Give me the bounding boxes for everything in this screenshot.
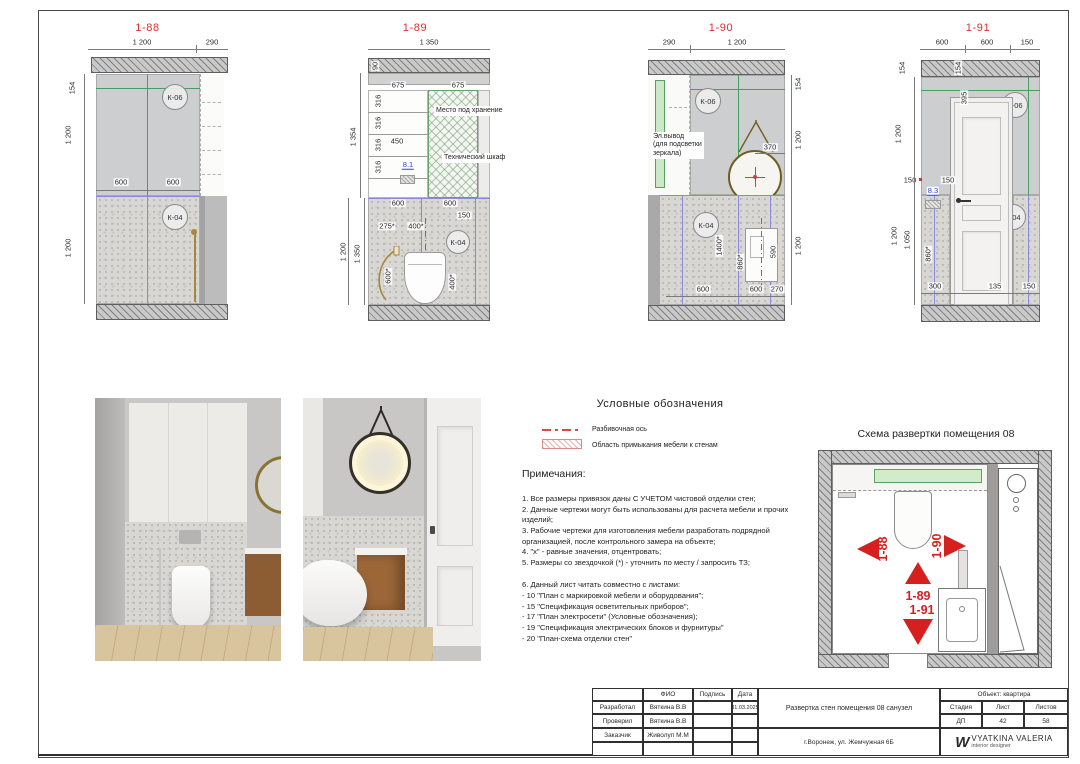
cabinet-shelf-line <box>202 126 221 127</box>
dim-label: 1 200 <box>64 125 72 146</box>
plan-niche-divider <box>988 464 998 654</box>
label-line: (для подсветки <box>653 141 702 149</box>
elevation-1-90: 1-90 290 1 200 К-06 370 Эл.вывод (для по… <box>635 22 807 327</box>
door-panel-render <box>437 566 473 626</box>
dim-label: 90 <box>371 61 379 71</box>
tb-header-fio: ФИО <box>643 688 693 701</box>
cabinet-shelf-line <box>202 150 221 151</box>
mirror-edge-render <box>255 456 281 514</box>
tb-role-checked: Проверил <box>592 714 643 728</box>
dim-label: 600* <box>384 267 392 284</box>
dim-line <box>666 296 785 297</box>
render-toilet-view <box>95 398 281 661</box>
view-label-1-91: 1-91 <box>909 603 934 617</box>
tb-sheets-value: 58 <box>1024 714 1068 728</box>
dim-label: 1 050 <box>903 230 911 251</box>
side-wall-edge <box>648 195 659 305</box>
dim-label: 600 <box>114 178 129 186</box>
green-joint-line <box>921 90 1040 91</box>
dim-label: 600 <box>166 178 181 186</box>
dim-line <box>360 73 361 198</box>
dim-label: 316 <box>374 116 382 131</box>
dim-tick <box>690 45 691 53</box>
tb-empty <box>592 688 643 701</box>
tb-header-sheets: Листов <box>1024 701 1068 714</box>
schema: Схема развертки помещения 08 1-88 1-90 1… <box>810 428 1062 670</box>
legend-title: Условные обозначения <box>520 398 800 410</box>
dim-line <box>88 49 228 50</box>
tb-header-stage: Стадия <box>940 701 982 714</box>
tile-grid-line <box>147 196 148 304</box>
brand-name: VYATKINA VALERIA <box>971 735 1052 744</box>
floor-beam <box>921 305 1040 322</box>
toilet-render <box>172 566 210 628</box>
mirror-center-dot <box>753 175 757 179</box>
tb-name: Вяткина В.В <box>643 701 693 714</box>
cabinet-seam <box>207 403 208 522</box>
vent-grille <box>400 175 415 184</box>
plan-wall-top <box>818 450 1052 464</box>
note-item: - 20 "План-схема отделки стен" <box>522 634 798 645</box>
plan-toilet <box>894 491 932 549</box>
tile-grid-line <box>475 198 476 305</box>
red-tick <box>919 178 922 181</box>
dim-label: 150 <box>457 211 472 219</box>
cabinet-dashed-line <box>669 107 687 108</box>
tb-header-sheet: Лист <box>982 701 1024 714</box>
cabinet-shelf-line <box>368 134 428 135</box>
tb-signature <box>693 728 732 742</box>
finish-tag-k04: К-04 <box>162 204 188 230</box>
electrical-output-label: Эл.вывод (для подсветки зеркала) <box>651 132 704 159</box>
dim-label: 400* <box>407 222 424 230</box>
door-panel-top <box>962 117 1001 195</box>
dim-line <box>348 198 349 305</box>
dim-label: 150 <box>941 176 956 184</box>
tb-empty <box>592 742 643 756</box>
view-label-1-90: 1-90 <box>930 533 944 558</box>
view-label-1-89: 1-89 <box>905 589 930 603</box>
plan-valve <box>1013 506 1019 512</box>
dim-label: 1 200 <box>339 242 347 263</box>
tb-role-client: Заказчик <box>592 728 643 742</box>
tb-stage-value: ДП <box>940 714 982 728</box>
cabinet-shelf-line <box>368 112 428 113</box>
floor-beam <box>96 304 228 320</box>
tb-object: Объект: квартира <box>940 688 1068 701</box>
cabinet-shelf-line <box>368 156 428 157</box>
plan-faucet <box>838 492 856 498</box>
dim-tick <box>965 45 966 53</box>
tb-signature <box>693 714 732 728</box>
sheet-ref-8-1: 8.1 <box>402 161 414 170</box>
dim-label: 300 <box>928 282 943 290</box>
plan-wall-left <box>818 450 832 668</box>
note-item: - 15 "Спецификация осветительных приборо… <box>522 602 798 613</box>
vanity-top-render <box>355 548 407 555</box>
floor-render <box>95 625 281 661</box>
view-label-1-88: 1-88 <box>876 536 890 561</box>
elevation-title: 1-91 <box>888 22 1068 34</box>
plan-wall-right <box>1038 450 1052 668</box>
door-panel-render <box>437 426 473 546</box>
dim-label: 395 <box>960 91 968 106</box>
dim-label: 600 <box>391 199 406 207</box>
green-joint-line <box>147 74 148 196</box>
dim-label: 600 <box>935 38 950 46</box>
dim-tick <box>196 45 197 53</box>
tb-name: Живолуп М.М <box>643 728 693 742</box>
dim-label: 275* <box>378 222 395 230</box>
dim-label: 150 <box>1020 38 1035 46</box>
dim-label: 1 200 <box>794 236 802 257</box>
sheet-ref-8-3: 8.3 <box>927 187 939 196</box>
socket-block <box>925 200 941 209</box>
dim-label: 590 <box>769 245 777 260</box>
dim-label: 370 <box>763 143 778 151</box>
furniture-hatch-label: Область примыкания мебели к стенам <box>592 441 718 451</box>
tile-grid-line <box>368 198 490 199</box>
elevation-1-89: 1-89 1 350 90 675 675 316 316 316 316 45… <box>340 22 515 327</box>
note-item: 4. "х" - равные значения, отцентровать; <box>522 547 798 558</box>
dim-label: 150 <box>1022 282 1037 290</box>
tb-empty <box>643 742 693 756</box>
legend: Условные обозначения Разбивочная ось Обл… <box>520 398 800 462</box>
floor-render <box>303 627 433 661</box>
dim-line <box>364 198 365 305</box>
note-item: 2. Данные чертежи могут быть использован… <box>522 505 798 526</box>
ceiling-band <box>368 73 490 85</box>
finish-tag-k04: К-04 <box>693 212 719 238</box>
dim-label: 290 <box>205 38 220 46</box>
dim-label: 860* <box>736 253 744 270</box>
tb-role-developed: Разработал <box>592 701 643 714</box>
view-arrow-right <box>944 535 966 557</box>
dim-label: 675 <box>451 81 466 89</box>
dim-label: 154 <box>954 61 962 76</box>
toilet-seat-line <box>408 264 442 265</box>
axis-line-label: Разбивочная ось <box>592 425 647 435</box>
dim-label: 600 <box>980 38 995 46</box>
schema-title: Схема развертки помещения 08 <box>810 428 1062 440</box>
label-line: Эл.вывод <box>653 133 702 141</box>
dim-line <box>755 153 785 154</box>
finish-tag-k04: К-04 <box>446 230 470 254</box>
note-item: 5. Размеры со звездочкой (*) - уточнить … <box>522 558 798 569</box>
note-item: - 17 "План электросети" (Условные обозна… <box>522 612 798 623</box>
notes: Примечания: 1. Все размеры привязок даны… <box>522 468 798 644</box>
dim-label: 1 354 <box>349 127 357 148</box>
cabinet-front <box>200 74 224 196</box>
tile-grid-line <box>738 195 739 305</box>
green-joint-line <box>1028 77 1029 195</box>
render-mirror-view <box>303 398 481 661</box>
dim-label: 860* <box>924 245 932 262</box>
elevation-title: 1-90 <box>635 22 807 34</box>
tb-empty <box>693 742 732 756</box>
dim-label: 1400* <box>715 235 723 257</box>
dim-label: 1 200 <box>64 238 72 259</box>
brand-logo: W <box>955 734 967 751</box>
dim-label: 450 <box>390 137 405 145</box>
dim-label: 316 <box>374 94 382 109</box>
note-item: - 10 "План с маркировкой мебели и оборуд… <box>522 591 798 602</box>
elevation-1-88: 1-88 1 200 290 К-06 600 600 К-04 154 1 2… <box>55 22 240 327</box>
tb-sheet-value: 42 <box>982 714 1024 728</box>
dim-label: 316 <box>374 160 382 175</box>
tile-grid-line <box>659 195 785 196</box>
dim-line <box>914 77 915 305</box>
tb-address: г.Воронеж, ул. Жемчужная 6Б <box>758 728 940 756</box>
dim-line <box>648 49 785 50</box>
tb-empty <box>732 742 758 756</box>
round-mirror-render <box>349 432 411 494</box>
dim-label: 675 <box>391 81 406 89</box>
notes-title: Примечания: <box>522 468 798 480</box>
storage-label: Место под хранение <box>434 106 505 116</box>
dim-label: 135 <box>988 282 1003 290</box>
dim-label: 154 <box>898 61 906 76</box>
finish-tag-k06: К-06 <box>162 84 188 110</box>
ceiling-beam <box>368 58 490 73</box>
axis-line-sample <box>542 429 582 431</box>
title-block: ФИО Подпись Дата Развертка стен помещени… <box>592 688 1068 756</box>
plan-wall-bottom <box>818 654 1052 668</box>
dim-label: 1 200 <box>890 226 898 247</box>
note-item: 1. Все размеры привязок даны С УЧЕТОМ чи… <box>522 494 798 505</box>
tb-header-sign: Подпись <box>693 688 732 701</box>
tb-date: 31.03.2025 <box>732 701 758 714</box>
finish-tag-k06: К-06 <box>695 88 721 114</box>
floor-beam <box>648 305 785 321</box>
door-panel-middle <box>962 205 1001 221</box>
dim-label: 600 <box>696 285 711 293</box>
tb-date <box>732 728 758 742</box>
render-left-wall <box>95 398 125 661</box>
plan-led-strip <box>874 469 982 483</box>
dim-line <box>84 74 85 304</box>
dim-line <box>791 75 792 305</box>
tb-doc-title: Развертка стен помещения 08 санузел <box>758 688 940 728</box>
plan-sink-faucet <box>959 606 965 612</box>
door-handle-render <box>430 526 435 534</box>
note-item: - 19 "Спецификация электрических блоков … <box>522 623 798 634</box>
dim-tick <box>1010 45 1011 53</box>
plan-sink-basin <box>946 598 978 642</box>
render-wall-cabinet <box>129 403 247 524</box>
ceiling-beam <box>91 57 228 73</box>
dim-line <box>96 190 200 191</box>
elevation-title: 1-88 <box>55 22 240 34</box>
note-item: 3. Рабочие чертежи для изготовления мебе… <box>522 526 798 547</box>
tb-header-date: Дата <box>732 688 758 701</box>
tb-date <box>732 714 758 728</box>
plan-door-opening <box>888 654 928 668</box>
cabinet-shelf-line <box>368 178 428 179</box>
flush-plate <box>179 530 201 544</box>
hygienic-shower-head <box>191 229 197 235</box>
floor-beam <box>368 305 490 321</box>
cabinet-shelf-line <box>202 174 221 175</box>
dim-label: 1 200 <box>794 130 802 151</box>
dim-label: 316 <box>374 138 382 153</box>
elevation-title: 1-89 <box>340 22 490 34</box>
hygienic-shower-render <box>159 548 161 626</box>
dim-label: 1 200 <box>894 124 902 145</box>
dim-label: 600 <box>443 199 458 207</box>
plan-niche-diagonal <box>998 558 1038 654</box>
ceiling-beam <box>648 60 785 75</box>
tech-closet-label: Технический шкаф <box>442 153 507 163</box>
dim-line <box>368 49 490 50</box>
side-wall-edge <box>200 196 205 304</box>
tb-signature <box>693 701 732 714</box>
dim-label: 1 200 <box>132 38 153 46</box>
ceiling-beam <box>921 60 1040 77</box>
plan-valve <box>1013 497 1019 503</box>
dim-label: 400* <box>448 273 456 290</box>
dim-label: 1 350 <box>419 38 440 46</box>
dim-label: 154 <box>68 81 76 96</box>
hygienic-shower <box>194 234 196 302</box>
tb-name: Вяткина В.В <box>643 714 693 728</box>
plan-water-meter <box>1007 474 1026 493</box>
dim-label: 290 <box>662 38 677 46</box>
brand-subtitle: interior designer <box>971 743 1052 749</box>
tile-grid-line <box>96 196 200 197</box>
elevation-1-91: 1-91 600 600 150 К-06 К-04 154 395 150 1… <box>888 22 1068 327</box>
view-arrow-down <box>903 619 933 645</box>
dim-label: 600 <box>749 285 764 293</box>
dim-label: 1 200 <box>727 38 748 46</box>
door-handle-bar <box>959 200 971 202</box>
red-centerline <box>761 218 762 290</box>
vanity-render <box>245 554 281 616</box>
drawing-sheet: 1-88 1 200 290 К-06 600 600 К-04 154 1 2… <box>0 0 1080 764</box>
dim-line <box>920 49 1040 50</box>
view-arrow-up <box>905 562 931 584</box>
note-item: 6. Данный лист читать совместно с листам… <box>522 580 798 591</box>
tb-logo-cell: W VYATKINA VALERIA interior designer <box>940 728 1068 756</box>
dim-label: 150 <box>903 176 918 184</box>
cabinet-shelf-line <box>202 102 221 103</box>
dim-label: 1 350 <box>353 244 361 265</box>
furniture-hatch-sample <box>542 439 582 449</box>
label-line: зеркала) <box>653 150 702 158</box>
tile-grid-line <box>682 195 683 305</box>
dim-label: 154 <box>794 77 802 92</box>
dim-line <box>921 293 1040 294</box>
dim-label: 270 <box>770 285 785 293</box>
cabinet-seam <box>168 403 169 522</box>
